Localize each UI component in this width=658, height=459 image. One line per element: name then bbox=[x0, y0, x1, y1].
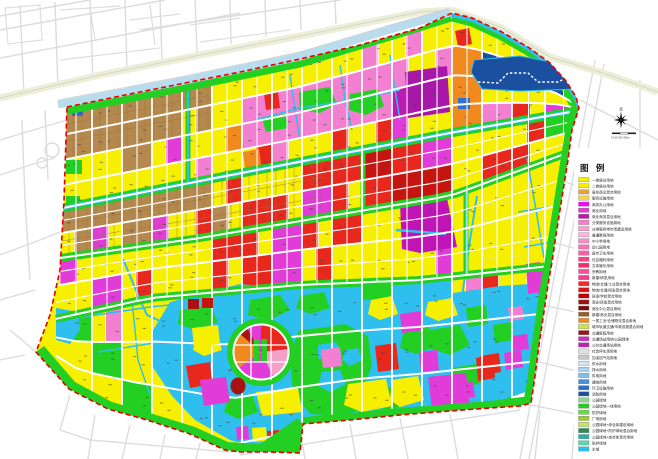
svg-text:供电用地: 供电用地 bbox=[592, 373, 607, 378]
svg-text:交通场站用地/公园绿地: 交通场站用地/公园绿地 bbox=[592, 336, 629, 341]
svg-text:商务办公用地: 商务办公用地 bbox=[592, 202, 614, 207]
svg-text:环卫设施用地: 环卫设施用地 bbox=[592, 385, 614, 390]
svg-text:公园绿地+综合体建设用地: 公园绿地+综合体建设用地 bbox=[592, 422, 634, 427]
svg-text:新建/商业混合用地: 新建/商业混合用地 bbox=[592, 312, 622, 317]
svg-text:水域: 水域 bbox=[592, 447, 600, 452]
svg-text:广场用地: 广场用地 bbox=[592, 416, 607, 421]
svg-text:加油加气站用地: 加油加气站用地 bbox=[592, 355, 618, 360]
svg-text:商业商务混合用地: 商业商务混合用地 bbox=[592, 214, 621, 219]
svg-text:文体娱乐用地: 文体娱乐用地 bbox=[592, 263, 614, 268]
svg-text:公园绿地+防护绿地混合用地: 公园绿地+防护绿地混合用地 bbox=[592, 428, 638, 433]
svg-text:商业中心混合用地: 商业中心混合用地 bbox=[592, 306, 621, 311]
svg-text:中小学用地: 中小学用地 bbox=[592, 239, 610, 244]
svg-text:居住商业混合用地: 居住商业混合用地 bbox=[592, 190, 621, 195]
svg-text:防护绿地: 防护绿地 bbox=[592, 410, 607, 415]
svg-text:商业用地: 商业用地 bbox=[592, 208, 607, 213]
svg-text:分类服务带市场建设用地: 分类服务带市场建设用地 bbox=[592, 226, 632, 231]
svg-text:消防用地: 消防用地 bbox=[592, 392, 607, 397]
svg-text:服务设施用地: 服务设施用地 bbox=[592, 196, 614, 201]
svg-text:一类居住用地: 一类居住用地 bbox=[592, 177, 614, 182]
svg-text:北: 北 bbox=[619, 106, 623, 112]
svg-text:供水用地: 供水用地 bbox=[592, 361, 607, 366]
svg-text:宗教用地: 宗教用地 bbox=[592, 269, 607, 274]
svg-text:一类工业/仓储物流混合用地: 一类工业/仓储物流混合用地 bbox=[592, 318, 637, 323]
svg-text:二类居住用地: 二类居住用地 bbox=[592, 183, 614, 188]
svg-text:幼儿园用地: 幼儿园用地 bbox=[592, 245, 610, 250]
svg-text:医疗卫生用地: 医疗卫生用地 bbox=[592, 251, 614, 256]
svg-text:公园绿地+综合体混合用地: 公园绿地+综合体混合用地 bbox=[592, 434, 634, 439]
svg-text:图 例: 图 例 bbox=[580, 163, 607, 173]
svg-text:社会福利用地: 社会福利用地 bbox=[592, 257, 614, 262]
svg-text:社会停车场用地: 社会停车场用地 bbox=[592, 349, 618, 354]
svg-text:公园绿地: 公园绿地 bbox=[592, 398, 607, 403]
svg-text:物流/仓储/工业混合用地: 物流/仓储/工业混合用地 bbox=[592, 281, 630, 286]
svg-text:通信用地: 通信用地 bbox=[592, 379, 607, 384]
svg-text:公园绿地一体用地: 公园绿地一体用地 bbox=[592, 404, 621, 409]
svg-text:新建/研发用地: 新建/研发用地 bbox=[592, 275, 615, 280]
svg-text:研发/学校混合用地: 研发/学校混合用地 bbox=[592, 294, 622, 299]
svg-text:城市轨道交通/市政设施混合用地: 城市轨道交通/市政设施混合用地 bbox=[592, 324, 644, 329]
svg-text:公共交通场站用地: 公共交通场站用地 bbox=[592, 343, 621, 348]
svg-text:普通教育用地: 普通教育用地 bbox=[592, 232, 614, 237]
svg-text:商业/研发混合用地: 商业/研发混合用地 bbox=[592, 300, 622, 305]
svg-text:排水用地: 排水用地 bbox=[592, 367, 607, 372]
svg-text:物流/仓储/研发混合用地: 物流/仓储/研发混合用地 bbox=[592, 288, 630, 293]
svg-text:交通枢纽用地: 交通枢纽用地 bbox=[592, 330, 614, 335]
svg-text:分类服务设施用地: 分类服务设施用地 bbox=[592, 220, 621, 225]
svg-text:防护绿地: 防护绿地 bbox=[592, 441, 607, 446]
svg-text:0 100 200 400m: 0 100 200 400m bbox=[611, 136, 630, 140]
